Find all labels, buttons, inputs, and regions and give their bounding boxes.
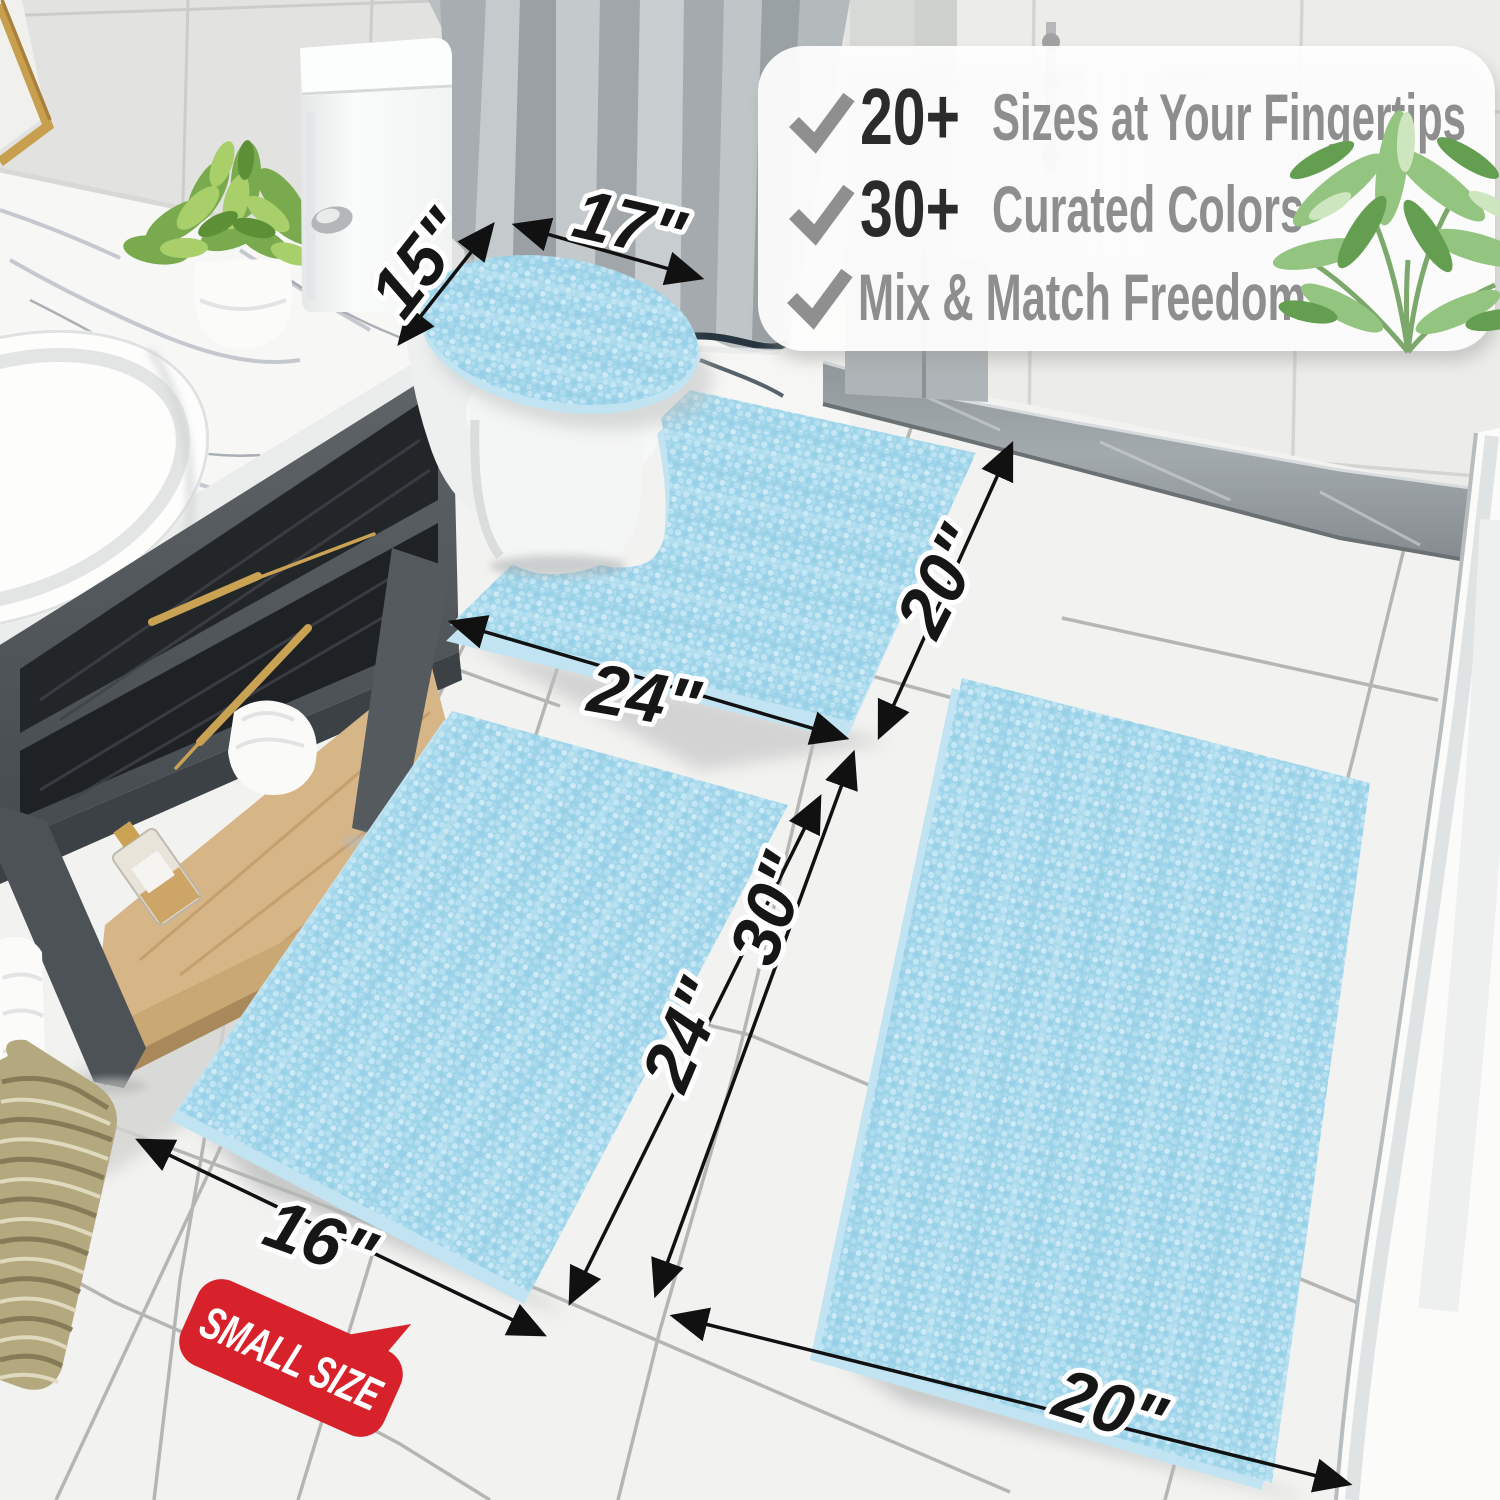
- svg-text:Curated Colors: Curated Colors: [992, 172, 1304, 246]
- svg-text:30+: 30+: [860, 164, 960, 253]
- svg-text:20+: 20+: [860, 72, 960, 161]
- svg-text:Mix & Match Freedom: Mix & Match Freedom: [858, 260, 1306, 334]
